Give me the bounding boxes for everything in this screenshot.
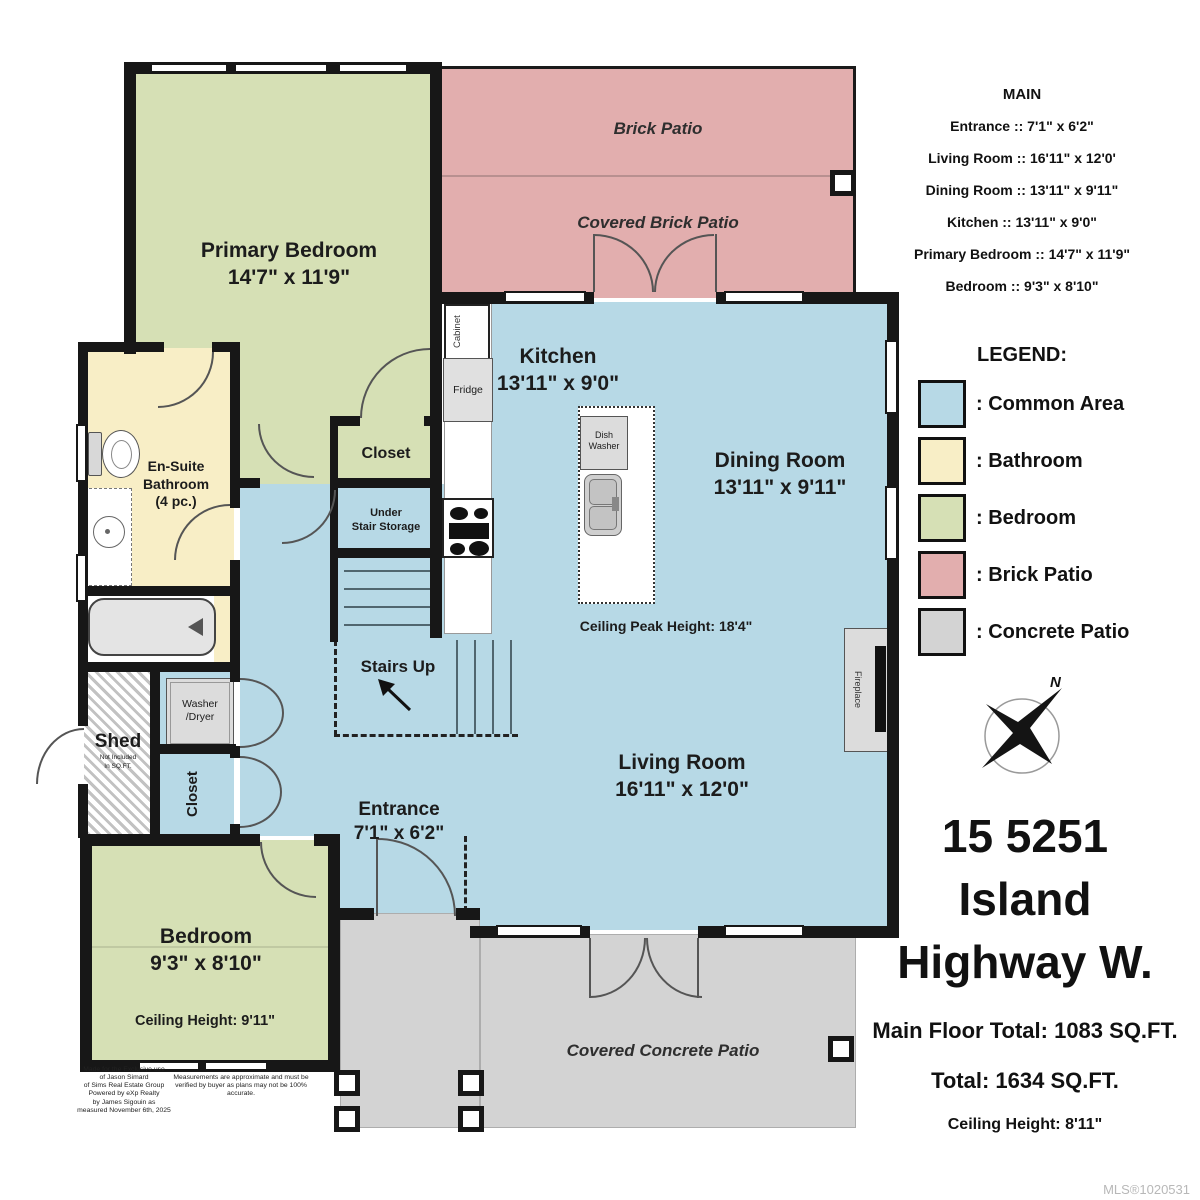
wall bbox=[336, 548, 432, 558]
legend-label: : Common Area bbox=[976, 380, 1200, 428]
ceiling-height: Ceiling Height: 8'11" bbox=[858, 1116, 1192, 1134]
address-line: 15 5251 bbox=[858, 806, 1192, 866]
burner bbox=[469, 541, 489, 556]
wall bbox=[78, 676, 88, 726]
wall bbox=[336, 478, 432, 488]
patio-edge bbox=[437, 66, 856, 69]
door-leaf bbox=[593, 234, 595, 292]
wall bbox=[336, 416, 360, 426]
legend-label: : Brick Patio bbox=[976, 551, 1200, 599]
compass-north-label: N bbox=[1050, 674, 1062, 691]
legend-swatch-concrete-patio bbox=[918, 608, 966, 656]
window bbox=[724, 925, 804, 937]
bedroom-label: Bedroom9'3" x 8'10" bbox=[98, 924, 314, 978]
stair-tread bbox=[474, 640, 476, 734]
stair-tread bbox=[492, 640, 494, 734]
hall-closet-label: Closet bbox=[184, 754, 212, 834]
toilet-tank bbox=[88, 432, 102, 476]
patio-post bbox=[830, 170, 856, 196]
primary-bedroom-area bbox=[132, 70, 432, 348]
patio-post bbox=[458, 1070, 484, 1096]
patio-post bbox=[828, 1036, 854, 1062]
door-leaf bbox=[589, 938, 591, 998]
summary-item: Primary Bedroom :: 14'7" x 11'9" bbox=[872, 246, 1172, 262]
window bbox=[338, 63, 408, 73]
primary-closet-label: Closet bbox=[338, 444, 434, 464]
primary-bedroom-label: Primary Bedroom14'7" x 11'9" bbox=[165, 238, 413, 292]
main-floor-total: Main Floor Total: 1083 SQ.FT. bbox=[858, 1018, 1192, 1044]
legend-label: : Concrete Patio bbox=[976, 608, 1200, 656]
vanity-drain bbox=[105, 529, 110, 534]
entrance-dashed-line bbox=[464, 836, 470, 912]
patio-post bbox=[458, 1106, 484, 1132]
washer-dryer-label: Washer/Dryer bbox=[166, 698, 234, 725]
living-room-label: Living Room16'11" x 12'0" bbox=[578, 750, 786, 804]
floorplan-page: { "colors":{"common":"#b7d9e6","bathroom… bbox=[0, 0, 1200, 1200]
wall bbox=[124, 342, 164, 352]
door-leaf bbox=[715, 234, 717, 292]
stairs-dashed-line bbox=[334, 640, 340, 736]
shed-door-arc bbox=[36, 728, 84, 784]
ensuite-label: En-SuiteBathroom(4 pc.) bbox=[114, 458, 238, 511]
wall bbox=[124, 62, 136, 354]
window bbox=[76, 554, 87, 602]
burner bbox=[474, 508, 488, 519]
window bbox=[724, 291, 804, 303]
window bbox=[204, 1061, 268, 1071]
brick-patio-divider bbox=[437, 175, 853, 177]
legend-label: : Bathroom bbox=[976, 437, 1200, 485]
address-line: Highway W. bbox=[858, 932, 1192, 992]
covered-brick-patio-label: Covered Brick Patio bbox=[540, 212, 776, 234]
door-leaf bbox=[697, 938, 699, 998]
legend-title: LEGEND: bbox=[872, 344, 1172, 367]
wall bbox=[230, 746, 240, 758]
dining-room-label: Dining Room13'11" x 9'11" bbox=[685, 448, 875, 502]
stairs-dashed-line bbox=[334, 734, 518, 740]
legend-swatch-brick-patio bbox=[918, 551, 966, 599]
compass-rose: N bbox=[972, 672, 1072, 776]
wall bbox=[80, 834, 92, 1072]
wall bbox=[328, 834, 340, 1072]
summary-item: Living Room :: 16'11" x 12'0' bbox=[872, 150, 1172, 166]
summary-title: MAIN bbox=[872, 86, 1172, 103]
summary-item: Kitchen :: 13'11" x 9'0" bbox=[872, 214, 1172, 230]
window bbox=[150, 63, 228, 73]
wall bbox=[230, 666, 240, 682]
legend-swatch-common-area bbox=[918, 380, 966, 428]
burner bbox=[450, 543, 465, 555]
patio-post bbox=[334, 1106, 360, 1132]
wall bbox=[78, 346, 88, 676]
stair-tread bbox=[344, 624, 430, 626]
address-line: Island bbox=[858, 869, 1192, 929]
stair-tread bbox=[510, 640, 512, 734]
stairs-up-label: Stairs Up bbox=[330, 656, 466, 678]
under-stair-label: UnderStair Storage bbox=[334, 506, 438, 535]
window bbox=[504, 291, 586, 303]
kitchen-label: Kitchen13'11" x 9'0" bbox=[474, 344, 642, 398]
wall bbox=[156, 744, 236, 754]
mls-number: MLS®1020531 bbox=[1020, 1182, 1190, 1197]
wall bbox=[78, 784, 88, 838]
stair-tread bbox=[344, 606, 430, 608]
wall bbox=[230, 560, 240, 678]
tub-faucet bbox=[188, 618, 203, 636]
wall bbox=[236, 478, 260, 488]
legend-label: : Bedroom bbox=[976, 494, 1200, 542]
entrance-label: Entrance7'1" x 6'2" bbox=[320, 798, 478, 847]
bathtub bbox=[88, 598, 216, 656]
stair-tread bbox=[456, 640, 458, 734]
window bbox=[234, 63, 328, 73]
disclaimer-right: Measurements are approximate and must be… bbox=[166, 1074, 316, 1098]
wall bbox=[456, 908, 480, 920]
patio-post bbox=[334, 1070, 360, 1096]
kitchen-sink bbox=[584, 474, 622, 536]
wall bbox=[330, 908, 374, 920]
dishwasher-label: DishWasher bbox=[580, 430, 628, 453]
ceiling-peak-label: Ceiling Peak Height: 18'4" bbox=[554, 618, 778, 636]
stove-panel bbox=[449, 523, 489, 539]
sink-faucet bbox=[612, 497, 619, 511]
stair-tread bbox=[344, 588, 430, 590]
fireplace-firebox bbox=[875, 646, 886, 732]
window bbox=[496, 925, 582, 937]
stairs-up-arrow bbox=[374, 676, 418, 716]
stair-tread bbox=[344, 570, 430, 572]
summary-item: Dining Room :: 13'11" x 9'11" bbox=[872, 182, 1172, 198]
total-sqft: Total: 1634 SQ.FT. bbox=[858, 1068, 1192, 1094]
wall bbox=[80, 834, 260, 846]
legend-swatch-bathroom bbox=[918, 437, 966, 485]
summary-item: Bedroom :: 9'3" x 8'10" bbox=[872, 278, 1172, 294]
window bbox=[76, 424, 87, 482]
window bbox=[885, 486, 898, 560]
brick-patio-label: Brick Patio bbox=[566, 118, 750, 140]
stove bbox=[442, 498, 494, 558]
shed-label: Shed Not Included In SQ.FT. bbox=[82, 730, 154, 771]
burner bbox=[450, 507, 468, 520]
covered-concrete-patio-label: Covered Concrete Patio bbox=[518, 1040, 808, 1062]
wall bbox=[78, 586, 238, 596]
fireplace-label: Fireplace bbox=[847, 640, 863, 740]
bedroom-ceiling-label: Ceiling Height: 9'11" bbox=[105, 1012, 305, 1031]
legend-swatch-bedroom bbox=[918, 494, 966, 542]
door-leaf bbox=[376, 838, 378, 916]
summary-item: Entrance :: 7'1" x 6'2" bbox=[872, 118, 1172, 134]
